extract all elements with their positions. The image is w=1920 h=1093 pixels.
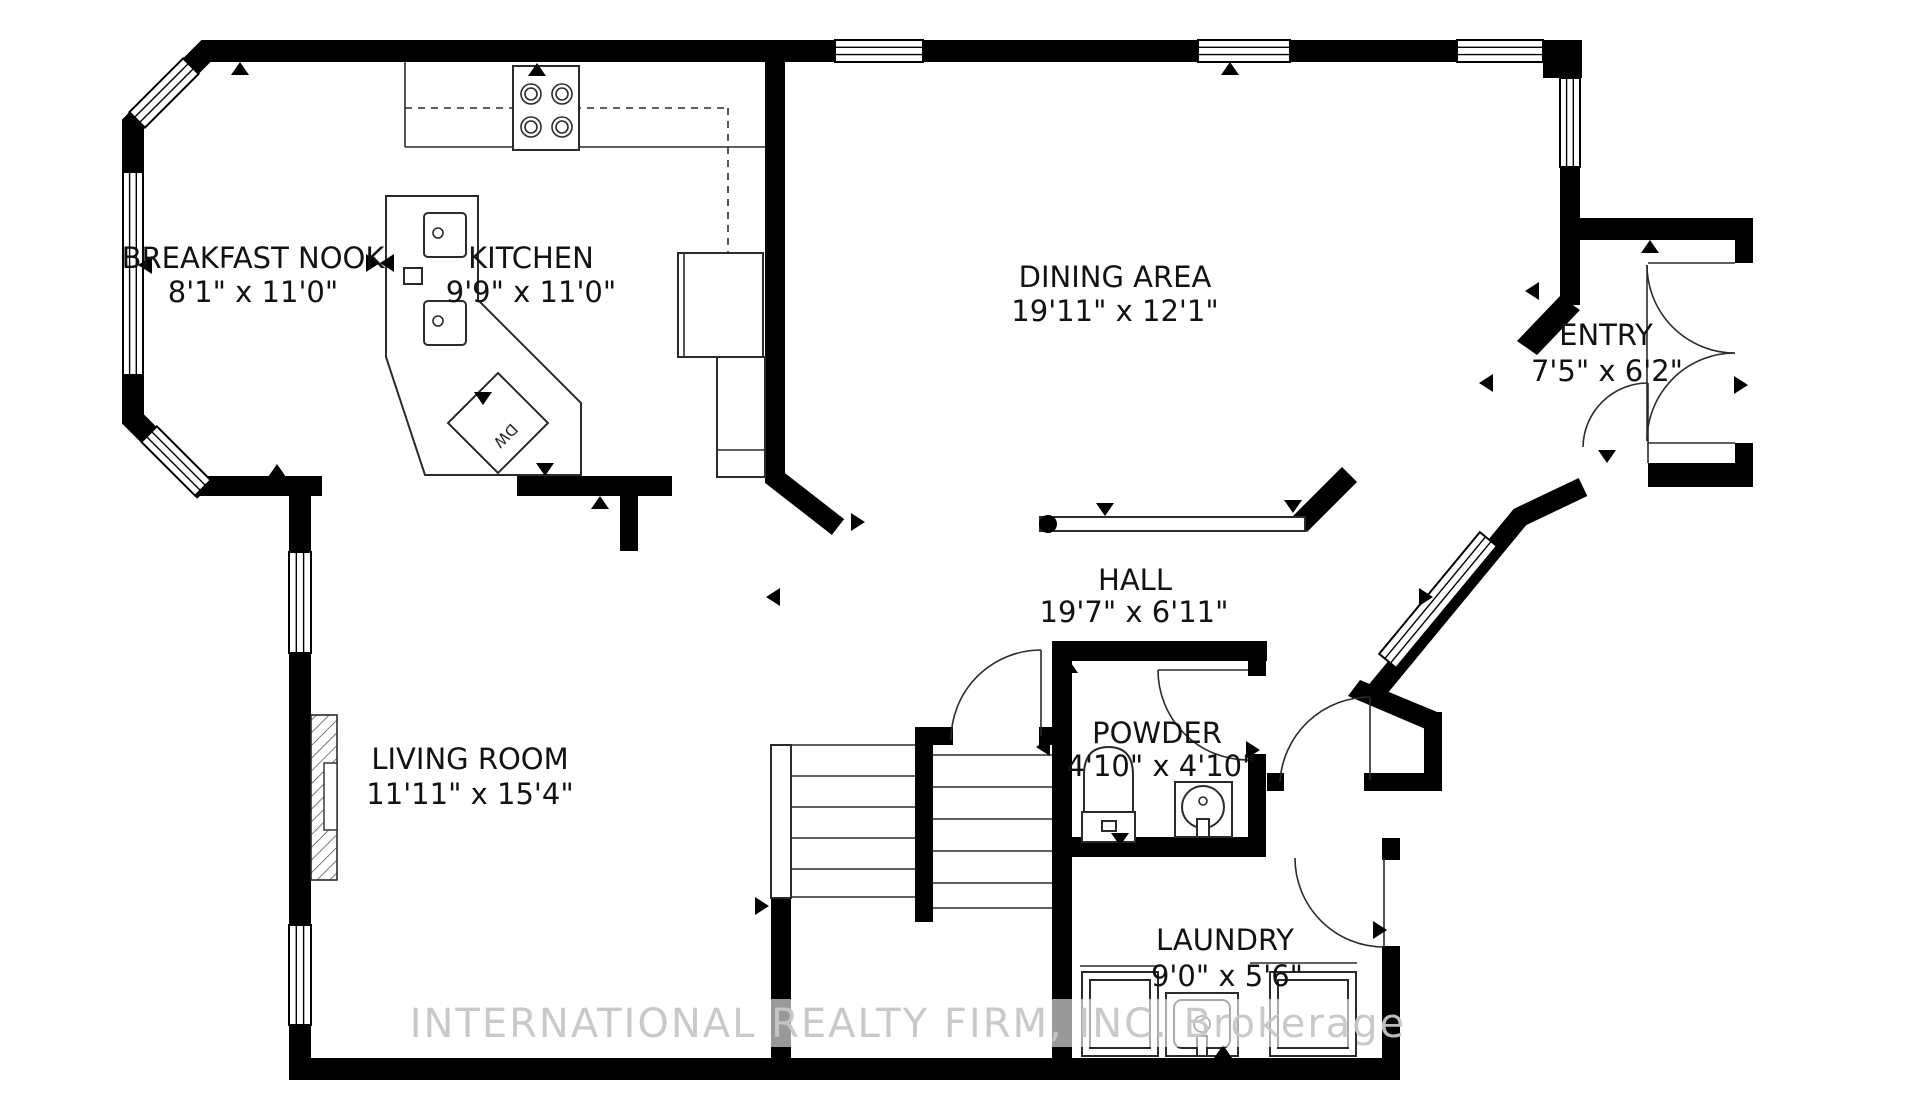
counter-edge bbox=[405, 62, 765, 147]
room-label-living-room: LIVING ROOM 11'11" x 15'4" bbox=[366, 742, 573, 811]
room-dims: 4'10" x 4'10" bbox=[1067, 749, 1256, 783]
window bbox=[1198, 40, 1290, 62]
windows bbox=[123, 40, 1580, 1025]
room-name: POWDER bbox=[1092, 716, 1222, 750]
room-dims: 8'1" x 11'0" bbox=[168, 275, 338, 309]
refrigerator-icon bbox=[678, 253, 763, 357]
room-name: HALL bbox=[1098, 563, 1172, 597]
room-name: DINING AREA bbox=[1019, 260, 1212, 294]
room-name: LAUNDRY bbox=[1156, 923, 1294, 957]
room-dims: 11'11" x 15'4" bbox=[366, 777, 573, 811]
room-name: BREAKFAST NOOK bbox=[122, 241, 386, 275]
window bbox=[289, 925, 311, 1025]
stove-icon bbox=[513, 66, 579, 150]
room-label-kitchen: KITCHEN 9'9" x 11'0" bbox=[446, 241, 616, 309]
room-name: LIVING ROOM bbox=[371, 742, 568, 776]
faucet-icon bbox=[404, 268, 422, 284]
room-dims: 19'11" x 12'1" bbox=[1011, 294, 1218, 328]
fireplace-icon bbox=[311, 715, 337, 880]
newel-post bbox=[1039, 515, 1057, 533]
room-dims: 7'5" x 6'2" bbox=[1531, 354, 1683, 388]
lower-counter bbox=[717, 357, 765, 477]
stair-treads-left bbox=[791, 745, 915, 897]
stair-railing bbox=[1039, 515, 1305, 533]
room-dims: 9'9" x 11'0" bbox=[446, 275, 616, 309]
window bbox=[129, 58, 198, 127]
watermark: INTERNATIONAL REALTY FIRM, INC. Brokerag… bbox=[410, 999, 1407, 1047]
window bbox=[1560, 78, 1580, 167]
exterior-walls bbox=[133, 40, 1753, 1069]
window bbox=[141, 426, 210, 495]
entry-double-door bbox=[1647, 263, 1735, 443]
kitchen-island: DW bbox=[386, 196, 581, 475]
floorplan-page: DW bbox=[0, 0, 1920, 1093]
stair-stringer bbox=[771, 745, 791, 898]
window bbox=[289, 552, 311, 653]
room-dims: 19'7" x 6'11" bbox=[1040, 595, 1229, 629]
window bbox=[1457, 40, 1543, 62]
room-dims: 9'0" x 5'6" bbox=[1151, 959, 1303, 993]
corridor-door bbox=[1280, 697, 1370, 782]
closet-door bbox=[951, 650, 1041, 740]
stair-treads-right bbox=[933, 755, 1052, 908]
room-label-dining-area: DINING AREA 19'11" x 12'1" bbox=[1011, 260, 1218, 328]
window bbox=[1379, 532, 1497, 668]
room-label-hall: HALL 19'7" x 6'11" bbox=[1040, 563, 1229, 629]
entry-hall-door bbox=[1583, 383, 1648, 463]
room-label-laundry: LAUNDRY 9'0" x 5'6" bbox=[1151, 923, 1303, 993]
window bbox=[835, 40, 923, 62]
room-name: ENTRY bbox=[1559, 318, 1653, 352]
room-name: KITCHEN bbox=[468, 241, 594, 275]
laundry-door bbox=[1295, 858, 1384, 947]
room-label-breakfast-nook: BREAKFAST NOOK 8'1" x 11'0" bbox=[122, 241, 386, 309]
room-label-powder: POWDER 4'10" x 4'10" bbox=[1067, 716, 1256, 783]
watermark-text: INTERNATIONAL REALTY FIRM, INC. Brokerag… bbox=[410, 1001, 1407, 1047]
vanity-sink-icon bbox=[1175, 782, 1232, 837]
sink-basin bbox=[424, 213, 466, 257]
floorplan-canvas: DW bbox=[0, 0, 1920, 1093]
